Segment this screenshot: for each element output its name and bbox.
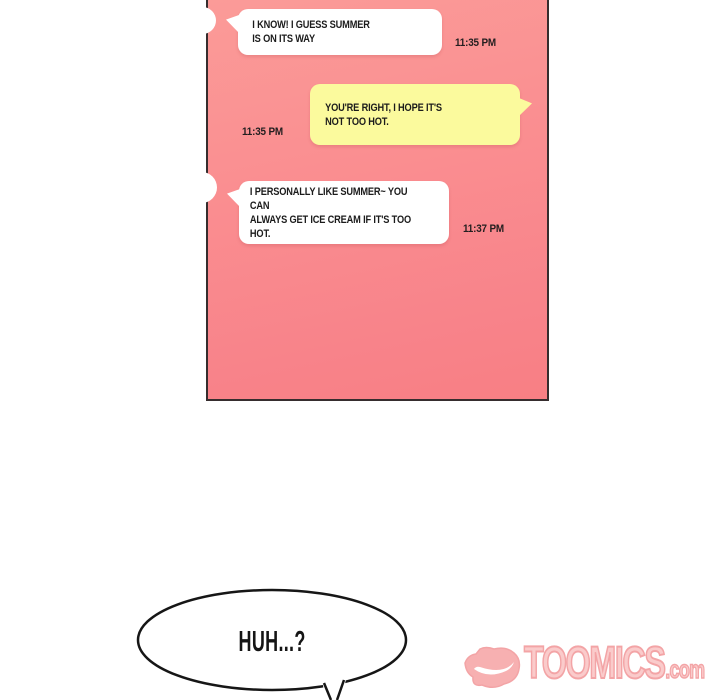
message-bubble-outgoing-1: YOU'RE RIGHT, I HOPE IT'S NOT TOO HOT. (310, 84, 520, 145)
bubble-tail-right-icon (519, 98, 532, 116)
toomics-watermark: TOOMICS .com (464, 638, 720, 691)
toomics-devil-icon (464, 645, 522, 691)
message-bubble-incoming-2: I PERSONALLY LIKE SUMMER~ YOU CAN ALWAYS… (239, 181, 449, 244)
message-text: I KNOW! I GUESS SUMMER IS ON ITS WAY (238, 18, 409, 46)
avatar-circle (186, 172, 217, 203)
message-text: I PERSONALLY LIKE SUMMER~ YOU CAN ALWAYS… (239, 185, 415, 241)
message-timestamp: 11:35 PM (455, 37, 496, 49)
message-bubble-incoming-1: I KNOW! I GUESS SUMMER IS ON ITS WAY (238, 9, 442, 55)
watermark-brand-text: TOOMICS (524, 638, 665, 688)
speech-text-container: HUH...? (132, 626, 412, 659)
message-timestamp: 11:37 PM (463, 223, 504, 235)
chat-screen-panel: I KNOW! I GUESS SUMMER IS ON ITS WAY 11:… (206, 0, 549, 401)
speech-text: HUH...? (238, 626, 305, 659)
message-timestamp: 11:35 PM (242, 126, 283, 138)
watermark-text-group: TOOMICS .com (524, 638, 704, 688)
watermark-suffix-text: .com (665, 656, 704, 685)
avatar-circle (189, 7, 216, 34)
message-text: YOU'RE RIGHT, I HOPE IT'S NOT TOO HOT. (310, 101, 486, 129)
